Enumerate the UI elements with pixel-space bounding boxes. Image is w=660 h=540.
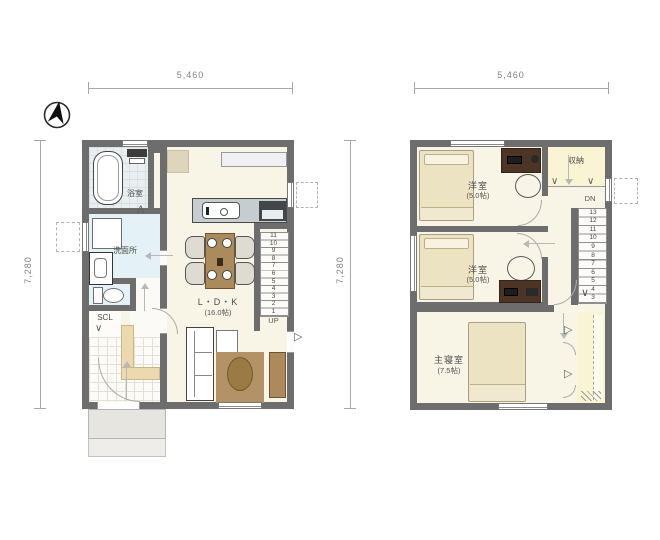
shower-unit (127, 149, 147, 157)
wall (542, 147, 548, 196)
stair-number: 11 (581, 225, 605, 234)
stair-number: 6 (581, 268, 605, 277)
wall (148, 147, 154, 208)
dimension-line (40, 140, 41, 409)
stair-number: 7 (581, 259, 605, 268)
hanger-icon: ∨ (551, 177, 558, 187)
sofa-seam (195, 352, 212, 353)
side-table (216, 330, 238, 353)
closet-hatch-mark (581, 391, 601, 401)
stair-number: 2 (260, 300, 287, 308)
plate-icon (222, 270, 232, 280)
hanger-icon: ∨ (587, 177, 594, 187)
dimension-label-width-1f: 5,460 (88, 70, 293, 80)
ldk-window-right (287, 182, 294, 208)
first-floor-plan: 浴室 Λ 洗面所 SCL ∨ (82, 140, 294, 409)
washing-machine (92, 218, 122, 249)
faucet-icon (206, 207, 209, 215)
closet-pipe-line (593, 315, 603, 400)
hall-ldk-door-arc (152, 308, 178, 334)
vanity-bowl (94, 258, 107, 278)
pillow (424, 238, 469, 249)
ldk-label: L・D・K (188, 297, 248, 307)
wall (160, 147, 167, 402)
dimension-label-width-2f: 5,460 (414, 70, 608, 80)
closet-door-arc (563, 342, 576, 355)
dining-chair (235, 262, 255, 285)
porch-step (88, 409, 166, 439)
bedroom2-window-left (410, 235, 417, 292)
entry-triangle-icon: ▷ (294, 332, 302, 343)
master-size-label: (7.5帖) (417, 367, 481, 376)
pillow (424, 154, 469, 165)
folding-door-icon: Λ (137, 205, 144, 216)
fridge-space (167, 150, 189, 173)
window-exterior-mark (56, 222, 80, 252)
wall (542, 257, 548, 307)
condiment-icon (217, 258, 223, 266)
blanket-fold (421, 207, 473, 220)
bath-counter (129, 158, 145, 164)
plate-icon (207, 238, 217, 248)
stove (259, 201, 286, 221)
dimension-label-height-1f: 7,280 (23, 242, 33, 298)
dining-table (205, 233, 235, 289)
ldk-size-label: (16.0帖) (188, 309, 248, 318)
desk-lamp-icon (526, 288, 538, 296)
toilet-tank (93, 287, 103, 304)
north-arrow-icon (40, 98, 74, 132)
desk (501, 148, 541, 173)
stair-number: 12 (581, 217, 605, 226)
master-label: 主寝室 (417, 355, 481, 365)
master-window-bottom (498, 403, 548, 410)
bedroom1-size-label: (5.0帖) (443, 192, 513, 201)
desk-lamp-icon (531, 155, 539, 163)
stair-number: 10 (260, 240, 287, 248)
bedroom2-door-arc (517, 233, 542, 259)
stair-number: 3 (260, 292, 287, 300)
plate-icon (222, 238, 232, 248)
stairs-up-label: UP (260, 317, 287, 326)
stair-number: 5 (260, 277, 287, 285)
entrance-door-opening (97, 402, 140, 409)
closet-door-arc (563, 385, 576, 398)
window-exterior-mark (296, 182, 318, 208)
bedroom2-label: 洋室 (443, 265, 513, 275)
stairs-direction-arrow: ∨ (581, 288, 589, 299)
tv-board (269, 352, 286, 398)
sofa-seam (195, 375, 212, 376)
stair-number: 6 (260, 270, 287, 278)
stair-number: 8 (581, 251, 605, 260)
hall-arrow-icon (144, 285, 145, 311)
washroom-arrow-icon (147, 255, 173, 256)
storage-label: 収納 (551, 156, 601, 165)
wall (89, 208, 160, 214)
dimension-line (88, 88, 293, 89)
window-exterior-mark (614, 178, 638, 204)
stair-number: 5 (581, 276, 605, 285)
toilet-bowl (103, 288, 124, 303)
stair-number: 4 (260, 285, 287, 293)
bedroom1-label: 洋室 (443, 181, 513, 191)
hall-arrow-icon (525, 243, 555, 244)
side-door-opening (287, 331, 294, 353)
laptop-icon (507, 156, 522, 164)
entry-arrow-icon (126, 363, 127, 400)
bathtub-inner (97, 155, 119, 201)
storage-arrow-icon (568, 155, 569, 183)
desk-chair (515, 174, 541, 198)
drain-icon (220, 208, 228, 216)
dining-chair (185, 262, 205, 285)
bedroom2-size-label: (5.0帖) (443, 276, 513, 285)
blanket-fold (470, 384, 525, 401)
hanger-icon: ∨ (95, 324, 102, 334)
washroom-window (82, 222, 89, 252)
stair-number: 11 (260, 232, 287, 240)
stair-number: 9 (581, 242, 605, 251)
plate-icon (207, 270, 217, 280)
back-counter (221, 152, 287, 167)
stair-number: 7 (260, 262, 287, 270)
stair-number: 1 (260, 307, 287, 315)
dimension-line (350, 140, 351, 409)
stair-numbers-1f: 1110987654321 (260, 232, 287, 315)
sofa-back-line (194, 331, 195, 397)
dimension-tick (608, 82, 609, 94)
vanity-sink (89, 252, 113, 285)
second-floor-plan: 洋室 (5.0帖) 収納 ∨ ∨ 洋室 (5.0帖) 1312111098765… (410, 140, 612, 410)
laptop-icon (504, 288, 518, 296)
dining-chair (185, 236, 205, 259)
dining-chair (235, 236, 255, 259)
scl-label: SCL (90, 313, 120, 322)
wall (89, 305, 136, 311)
blanket-fold (421, 286, 473, 299)
door-opening (160, 250, 167, 266)
kitchen-counter (192, 198, 287, 223)
dimension-line (414, 88, 608, 89)
stair-number: 8 (260, 255, 287, 263)
porch-step (88, 439, 166, 457)
bedroom1-door-arc (518, 200, 542, 226)
storage-window-right (605, 178, 612, 202)
hanger-icon: ▷ (564, 325, 572, 336)
wall (417, 305, 554, 312)
stair-number: 10 (581, 234, 605, 243)
stair-number: 13 (581, 208, 605, 217)
stairs-down-label: DN (575, 195, 605, 204)
sofa (186, 327, 214, 401)
ldk-window-bottom (218, 402, 262, 409)
hanger-icon: ▷ (564, 369, 572, 380)
bath-window (122, 140, 148, 147)
bedroom1-window-top (450, 140, 505, 147)
wall (417, 226, 548, 232)
stair-number: 9 (260, 247, 287, 255)
oven-door (262, 210, 283, 219)
floorplan-canvas: 5,460 7,280 5,460 7,280 ▷ (0, 0, 660, 540)
dimension-label-height-2f: 7,280 (335, 242, 345, 298)
bath-label: 浴室 (117, 189, 153, 198)
coffee-table (227, 357, 253, 391)
